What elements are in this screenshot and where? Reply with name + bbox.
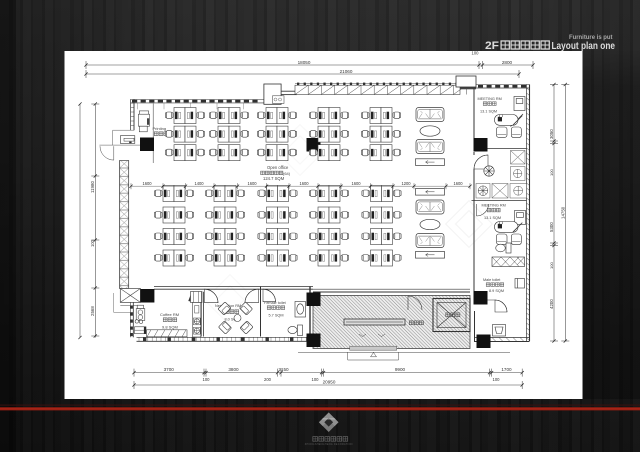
- svg-text:13.1 SQM: 13.1 SQM: [484, 216, 501, 220]
- svg-text:2568: 2568: [90, 306, 95, 316]
- svg-text:ZHONGSHENGHENG DECORATION: ZHONGSHENGHENG DECORATION: [305, 443, 353, 446]
- svg-text:100: 100: [493, 377, 501, 382]
- svg-text:1600: 1600: [351, 181, 361, 186]
- svg-text:MEETING RM: MEETING RM: [482, 204, 506, 208]
- svg-text:9.8 SQM: 9.8 SQM: [162, 325, 178, 330]
- svg-text:5300: 5300: [549, 222, 554, 232]
- svg-text:100: 100: [312, 377, 320, 382]
- svg-text:Printing: Printing: [153, 126, 167, 131]
- svg-text:1600: 1600: [299, 181, 309, 186]
- svg-text:14750: 14750: [560, 206, 565, 219]
- svg-text:11980: 11980: [90, 181, 95, 193]
- svg-text:3050: 3050: [549, 129, 554, 139]
- svg-text:100: 100: [203, 377, 211, 382]
- svg-text:100: 100: [549, 262, 554, 269]
- svg-text:2800: 2800: [502, 60, 513, 65]
- svg-text:1700: 1700: [501, 367, 512, 372]
- svg-text:100: 100: [90, 239, 95, 247]
- svg-text:1200: 1200: [401, 181, 411, 186]
- svg-text:Coffee RM: Coffee RM: [160, 312, 179, 317]
- svg-text:9900: 9900: [395, 367, 406, 372]
- svg-text:2150: 2150: [278, 367, 289, 372]
- svg-text:Layout plan one: Layout plan one: [552, 40, 616, 52]
- svg-text:MEETING RM: MEETING RM: [478, 97, 502, 101]
- svg-text:124.7 SQM: 124.7 SQM: [263, 176, 285, 181]
- svg-text:8.9 SQM: 8.9 SQM: [489, 289, 504, 293]
- svg-text:200: 200: [264, 377, 272, 382]
- svg-text:20950: 20950: [323, 380, 336, 385]
- svg-text:Open office: Open office: [267, 165, 289, 170]
- svg-text:3800: 3800: [228, 367, 239, 372]
- svg-text:100: 100: [549, 169, 554, 176]
- svg-text:100: 100: [472, 51, 480, 56]
- svg-text:18050: 18050: [298, 60, 311, 65]
- svg-text:4200: 4200: [549, 299, 554, 309]
- svg-text:1400: 1400: [194, 181, 204, 186]
- svg-text:5.7 SQM: 5.7 SQM: [269, 314, 284, 318]
- svg-text:Male toilet: Male toilet: [483, 278, 501, 282]
- svg-text:21060: 21060: [340, 69, 353, 74]
- svg-text:1600: 1600: [142, 181, 152, 186]
- svg-text:1600: 1600: [247, 181, 257, 186]
- svg-text:3700: 3700: [164, 367, 175, 372]
- svg-text:13.1 SQM: 13.1 SQM: [480, 110, 497, 114]
- svg-text:2F: 2F: [485, 40, 499, 52]
- svg-text:Female toilet: Female toilet: [264, 301, 287, 305]
- svg-text:1600: 1600: [453, 181, 463, 186]
